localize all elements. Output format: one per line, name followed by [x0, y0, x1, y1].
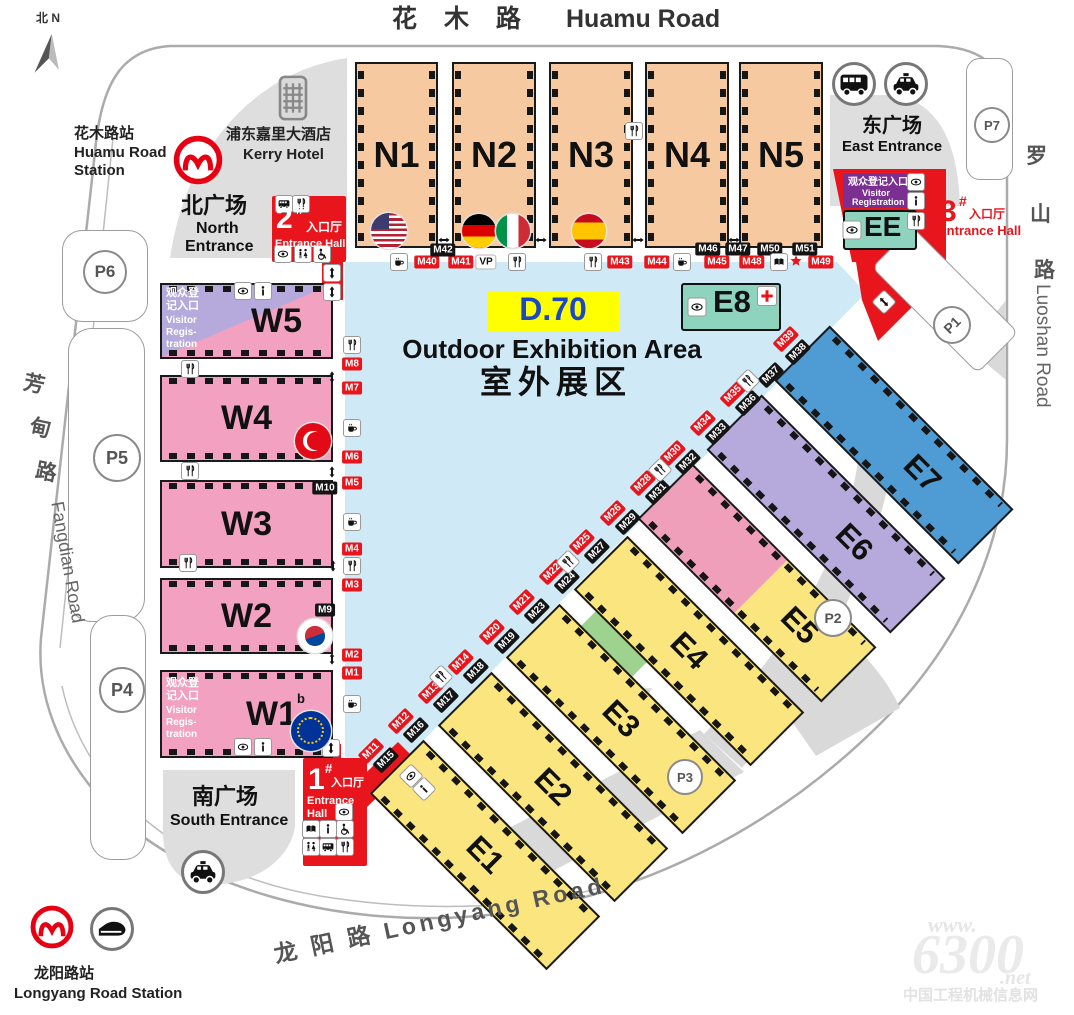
eye-icon: [688, 298, 707, 317]
gate-m41: M41: [448, 256, 473, 269]
text-south-plaza-zh: 南广场: [192, 786, 258, 809]
hall-label-n2: N2: [471, 134, 517, 176]
text-entrance1-en1: Entrance: [307, 796, 354, 807]
fork-icon: [343, 336, 361, 354]
venue-map: 花 木 路Huamu Road罗山路Luoshan Road芳甸路Fangdia…: [0, 0, 1074, 1015]
flag-turkey: [295, 423, 331, 459]
fork-icon: [336, 838, 354, 856]
gate-m40: M40: [414, 256, 439, 269]
text-road-luoshan-zh-2: 山: [1030, 204, 1051, 226]
gate-m45: M45: [704, 256, 729, 269]
eye-icon: [234, 282, 252, 300]
text-station-huamu-en2: Station: [74, 163, 125, 179]
coffee-icon: [343, 419, 361, 437]
fork-icon: [343, 557, 361, 575]
text-road-luoshan-zh-3: 路: [1034, 260, 1055, 282]
alr-icon: [728, 234, 740, 246]
text-north-plaza-en2: Entrance: [185, 239, 253, 256]
hall-label-e4: E4: [663, 625, 715, 677]
info-icon: [254, 282, 272, 300]
text-north-plaza-en1: North: [196, 221, 239, 238]
fork-icon: [508, 253, 526, 271]
text-watermark-cn: 中国工程机械信息网: [903, 988, 1038, 1004]
compass-icon: [23, 31, 69, 77]
hall-label-w5: W5: [251, 302, 302, 341]
text-highlight-d70: D.70: [519, 293, 587, 326]
text-entrance2-num: 2: [276, 203, 293, 234]
hall-label-e6: E6: [828, 516, 880, 568]
bus-icon: [319, 838, 337, 856]
flag-italy: [496, 214, 530, 248]
text-station-huamu-en1: Huamu Road: [74, 145, 167, 161]
text-kerry-hotel-en: Kerry Hotel: [243, 147, 324, 163]
cross-icon: [757, 286, 777, 306]
coffee-icon: [673, 253, 691, 271]
gate-m10: M10: [312, 482, 337, 495]
gate-m48: M48: [739, 256, 764, 269]
text-entrance1-zh: 入口厅: [331, 778, 364, 789]
text-watermark-net: .net: [1000, 968, 1031, 989]
parking-p6: P6: [83, 250, 127, 294]
text-entrance3-zh: 入口厅: [969, 208, 1005, 220]
gate-m7: M7: [342, 382, 362, 395]
gate-m2: M2: [342, 649, 362, 662]
text-hall-w1-sup: b: [297, 692, 305, 706]
text-entrance1-sup: #: [325, 762, 332, 776]
gate-m46: M46: [695, 243, 720, 256]
hotel-icon: [267, 72, 319, 124]
star-icon: [789, 254, 803, 268]
flag-germany: [462, 214, 496, 248]
aud-icon: [323, 264, 341, 282]
gate-m6: M6: [342, 451, 362, 464]
text-reg-w5-zh2: 记入口: [166, 301, 199, 312]
fork-icon: [907, 212, 925, 230]
coffee-icon: [343, 695, 361, 713]
hall-label-w3: W3: [221, 505, 272, 544]
text-reg-w5-en2: Regis-: [166, 328, 197, 338]
coffee-icon: [390, 253, 408, 271]
parking-p4: P4: [99, 667, 145, 713]
text-east-plaza-zh: 东广场: [862, 116, 922, 137]
hall-label-n3: N3: [568, 134, 614, 176]
restroom-icon: [302, 838, 320, 856]
text-reg-w1-zh2: 记入口: [166, 691, 199, 702]
text-reg-w1-en1: Visitor: [166, 706, 197, 716]
text-outdoor-zh: 室外展区: [480, 366, 632, 399]
eye-icon: [843, 221, 862, 240]
aud-icon: [326, 371, 338, 383]
aud-icon: [327, 560, 339, 572]
fork-icon: [179, 554, 197, 572]
hall-label-e7: E7: [896, 447, 948, 499]
flag-eu: [291, 711, 331, 751]
text-hall-ee-label: EE: [864, 212, 901, 241]
coffee-icon: [343, 513, 361, 531]
taxi-icon: [181, 850, 225, 894]
flag-spain: [572, 214, 606, 248]
hall-label-w2: W2: [221, 597, 272, 636]
hall-label-e2: E2: [527, 761, 579, 813]
gate-m49: M49: [808, 256, 833, 269]
gate-m5: M5: [342, 477, 362, 490]
bus-icon: [832, 62, 876, 106]
text-reg-w1-en2: Regis-: [166, 718, 197, 728]
flag-korea: [298, 619, 332, 653]
parking-lot-p4: [90, 615, 146, 860]
text-road-luoshan-en: Luoshan Road: [1032, 284, 1052, 408]
text-road-fangdian-zh-2: 甸: [27, 416, 52, 442]
text-reg-w5-zh1: 观众登: [166, 288, 199, 299]
fork-icon: [181, 360, 199, 378]
aud-icon: [323, 283, 341, 301]
metro-icon: [29, 904, 75, 950]
gate-m43: M43: [607, 256, 632, 269]
text-station-longyang-en: Longyang Road Station: [14, 986, 182, 1002]
gate-m8: M8: [342, 358, 362, 371]
flag-usa: [371, 213, 407, 249]
metro-icon: [172, 134, 224, 186]
text-reg-w1-zh1: 观众登: [166, 678, 199, 689]
taxi-icon: [884, 62, 928, 106]
text-station-longyang-zh: 龙阳路站: [34, 966, 94, 982]
text-road-fangdian-zh-1: 芳: [21, 372, 46, 398]
text-station-huamu-zh: 花木路站: [74, 126, 134, 142]
parking-p3: P3: [667, 759, 703, 795]
text-entrance2-sup: #: [296, 202, 304, 217]
hall-label-e3: E3: [595, 693, 647, 745]
text-outdoor-en: Outdoor Exhibition Area: [402, 336, 701, 363]
eye-icon: [907, 173, 925, 191]
alr-icon: [535, 234, 547, 246]
info-icon: [319, 820, 337, 838]
text-compass-label: 北 N: [36, 12, 60, 24]
book-icon: [302, 820, 320, 838]
hall-label-e1: E1: [459, 829, 511, 881]
text-road-luoshan-zh-1: 罗: [1026, 146, 1047, 168]
gate-m4: M4: [342, 543, 362, 556]
parking-p5: P5: [93, 434, 141, 482]
hall-label-n4: N4: [664, 134, 710, 176]
text-entrance2-en: Entrance Hall: [275, 239, 345, 250]
train-icon: [90, 907, 134, 951]
gate-m44: M44: [644, 256, 669, 269]
fork-icon: [584, 253, 602, 271]
parking-p7: P7: [974, 107, 1010, 143]
text-kerry-hotel-zh: 浦东嘉里大酒店: [226, 127, 331, 143]
alr-icon: [632, 234, 644, 246]
text-road-huamu-en: Huamu Road: [566, 6, 720, 32]
wheelchair-icon: [336, 820, 354, 838]
text-reg-w5-en3: tration: [166, 340, 197, 350]
aud-icon: [326, 466, 338, 478]
gate-m9: M9: [315, 604, 335, 617]
hall-label-n1: N1: [373, 134, 419, 176]
gate-m3: M3: [342, 579, 362, 592]
aud-icon: [326, 653, 338, 665]
text-reg-w1-en3: tration: [166, 730, 197, 740]
parking-p2: P2: [814, 599, 852, 637]
gate-vp: VP: [476, 256, 495, 269]
hall-label-n5: N5: [758, 134, 804, 176]
hall-n4: N4: [645, 62, 729, 248]
text-hall-e8-label: E8: [713, 286, 751, 318]
fork-icon: [625, 122, 643, 140]
hall-label-w1: W1: [246, 695, 297, 734]
text-east-plaza-en: East Entrance: [842, 139, 942, 155]
info-icon: [907, 192, 925, 210]
fork-icon: [181, 462, 199, 480]
book-icon: [770, 253, 788, 271]
text-entrance1-num: 1: [308, 764, 325, 795]
text-south-plaza-en: South Entrance: [170, 813, 288, 830]
gate-m1: M1: [342, 667, 362, 680]
text-road-fangdian-zh-3: 路: [33, 460, 58, 486]
text-road-huamu-zh: 花 木 路: [392, 6, 531, 32]
text-reg-ee-zh: 观众登记入口: [848, 178, 908, 188]
text-entrance2-zh: 入口厅: [306, 221, 342, 233]
eye-icon: [234, 738, 252, 756]
text-entrance1-en2: Hall: [307, 809, 327, 820]
text-entrance3-en: Entrance Hall: [938, 224, 1021, 238]
info-icon: [254, 738, 272, 756]
hall-n5: N5: [739, 62, 823, 248]
text-north-plaza-zh: 北广场: [181, 195, 247, 218]
text-entrance3-sup: #: [959, 194, 967, 209]
text-reg-ee-en2: Registration: [852, 198, 905, 207]
hall-label-w4: W4: [221, 399, 272, 438]
alr-icon: [438, 234, 450, 246]
text-reg-w5-en1: Visitor: [166, 316, 197, 326]
